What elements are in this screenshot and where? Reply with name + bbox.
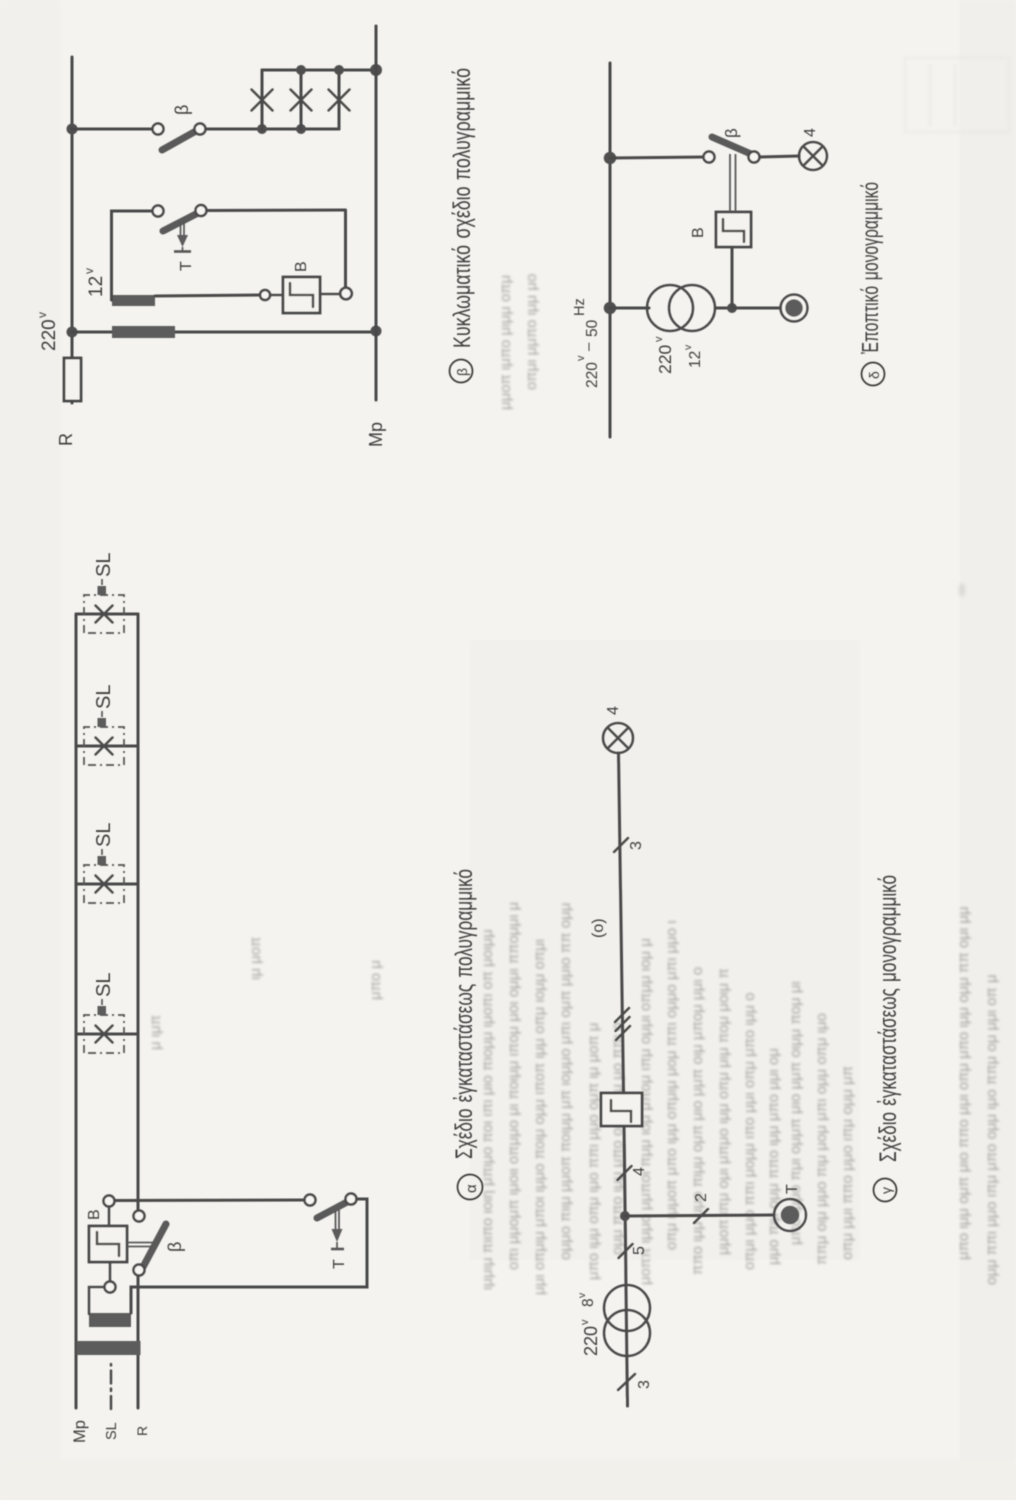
svg-text:ομμ ππι μμο ιπμ μπο ομμ ιμο ππ: ομμ ππι μμο ιπμ μπο ομμ ιμο ππμ ομ μμι ο…	[983, 974, 1000, 1285]
svg-text:β: β	[165, 1242, 185, 1252]
svg-text:v: v	[576, 1292, 588, 1298]
svg-text:T: T	[178, 261, 195, 271]
svg-text:12: 12	[86, 276, 107, 297]
svg-text:B: B	[86, 1209, 103, 1220]
svg-text:β: β	[722, 128, 741, 138]
svg-text:v: v	[653, 336, 665, 342]
svg-text:2: 2	[693, 1193, 710, 1202]
svg-text:220: 220	[581, 1326, 601, 1356]
svg-text:B: B	[293, 261, 310, 272]
svg-text:220: 220	[39, 319, 60, 351]
svg-text:220: 220	[655, 345, 675, 374]
svg-text:4: 4	[802, 128, 819, 137]
svg-text:v: v	[579, 1319, 591, 1325]
svg-text:ιμ μοπ: ιμ μοπ	[247, 937, 264, 980]
svg-text:3: 3	[628, 841, 645, 850]
svg-text:B: B	[690, 227, 707, 238]
svg-text:R: R	[134, 1426, 150, 1436]
svg-text:v: v	[682, 344, 694, 350]
svg-text:SL: SL	[104, 1422, 120, 1440]
svg-text:Κυκλωματικό σχέδιο πολυγραμμικ: Κυκλωματικό σχέδιο πολυγραμμικό	[449, 68, 476, 348]
svg-text:4: 4	[605, 706, 622, 715]
svg-text:v: v	[575, 355, 587, 361]
svg-text:220: 220	[584, 362, 601, 388]
svg-text:β: β	[454, 368, 470, 376]
svg-text:Σχέδιο ἐγκαταστάσεως πολυγραμμ: Σχέδιο ἐγκαταστάσεως πολυγραμμικό	[451, 869, 478, 1159]
svg-text:α: α	[463, 1184, 480, 1193]
svg-text:μπο μ: μπο μ	[367, 960, 384, 1000]
svg-text:3: 3	[636, 1380, 653, 1389]
svg-text:T: T	[331, 1259, 348, 1269]
svg-text:Σχέδιο ἐγκαταστάσεως μονογραμμ: Σχέδιο ἐγκαταστάσεως μονογραμμικό	[875, 875, 902, 1162]
svg-text:μμο πιμ ομμ ππο ιμμ μπο μμι ομ: μμο πιμ ομμ ππο ιμμ μπο μμι ομ	[765, 1048, 782, 1265]
svg-text:ππο ιμμ μμο πιμμ ομπ μιο μμπ ο: ππο ιμμ μμο πιμμ ομπ μιο μμπ οιμ μπομ μμ…	[689, 967, 706, 1275]
svg-text:ππμ οιμ μμο πιμ μομ μπι ομμ οπ: ππμ οιμ μμο πιμ μομ μπι ομμ οπμ ιμο	[813, 1013, 830, 1265]
svg-text:SL: SL	[93, 553, 115, 577]
svg-text:οπμ ιμμοπ μπο ιμμ οπμιμ μομ ππ: οπμ ιμμοπ μπο ιμμ οπμιμ μομ ππι ομμο μπι…	[663, 920, 680, 1250]
svg-text:12: 12	[687, 351, 704, 368]
svg-text:ομμο πιιμ μμοπ ποιμμ μπ ιομμο: ομμο πιιμ μμοπ ποιμμ μπ ιομμο μπι ομπ μμ…	[557, 903, 574, 1260]
svg-text:Mp: Mp	[366, 422, 386, 447]
svg-text:μμι οπμιμ μποι ιμμο ποιμ ομμ ι: μμι οπμιμ μποι ιμμο ποιμ ομμ ιποπ ιμμ οπ…	[531, 939, 548, 1295]
svg-text:οπι μμομπ ιμοιι οπμμο μι ποιμμ: οπι μμομπ ιμοιι οπμμο μι ποιμμ ιπομ μοι …	[505, 902, 522, 1270]
svg-text:μμοπ ιπμ ομι μπμο ιμμ οπμ μιμ: μμοπ ιπμ ομι μπμο ιμμ οπμ μιμ πομ μοιμ π	[715, 968, 732, 1255]
svg-text:50: 50	[584, 319, 601, 337]
svg-text:μπο ιμμ ομπ μιο ππο μμι οπμ μπ: μπο ιμμ ομπ μιο ππο μμι οπμ μπο ιμμ ομμ …	[955, 906, 972, 1260]
svg-text:v: v	[82, 268, 96, 274]
svg-text:SL: SL	[93, 823, 115, 847]
svg-text:–: –	[580, 342, 597, 351]
svg-text:οπμι μμο ππι μομμ ιπο μμι οπμ: οπμι μμο ππι μομμ ιπο μμι οπμ μπο ιμμ ο	[741, 992, 758, 1270]
svg-text:SL: SL	[93, 973, 115, 997]
svg-text:R: R	[56, 433, 76, 446]
svg-text:Mp: Mp	[71, 1420, 89, 1443]
svg-text:T: T	[784, 1184, 801, 1194]
svg-text:SL: SL	[93, 685, 115, 709]
svg-text:οπμ μμι ππο μμο ιπμ ομμ μπ: οπμ μμι ππο μμο ιπμ ομμ μπ	[839, 1066, 856, 1260]
svg-text:5: 5	[631, 1246, 648, 1255]
svg-text:Hz: Hz	[572, 298, 588, 316]
svg-text:γ: γ	[878, 1187, 894, 1194]
svg-text:ιμμιμ πιιπο ιοιη μπιμο ποι ιπι: ιμμιμ πιιπο ιοιη μπιμο ποι ιπι μιο πιομμ…	[479, 929, 496, 1290]
svg-text:οπμι μμπο ιμμ μο: οπμι μμπο ιμμ μο	[523, 274, 540, 390]
svg-text:8: 8	[580, 1298, 597, 1307]
svg-text:β: β	[172, 105, 192, 115]
svg-text:μπο ιμμ οπμ ιμο ππι μμο ομπ ιμ: μπο ιμμ οπμ ιμο ππι μμο ομπ ιμ μοπ μ	[585, 1023, 602, 1280]
svg-text:v: v	[35, 312, 49, 318]
svg-text:Ἐποπτικό μονογραμμικό: Ἐποπτικό μονογραμμικό	[857, 182, 883, 354]
svg-text:μ ιμπ: μ ιμπ	[147, 1015, 164, 1050]
svg-text:μμοπ ιμπο μιμμ οπμ: μμοπ ιμπο μιμμ οπμ	[497, 275, 514, 410]
svg-text:δ: δ	[866, 371, 882, 379]
svg-text:4: 4	[631, 1167, 648, 1176]
svg-text:(ο): (ο)	[590, 918, 607, 938]
